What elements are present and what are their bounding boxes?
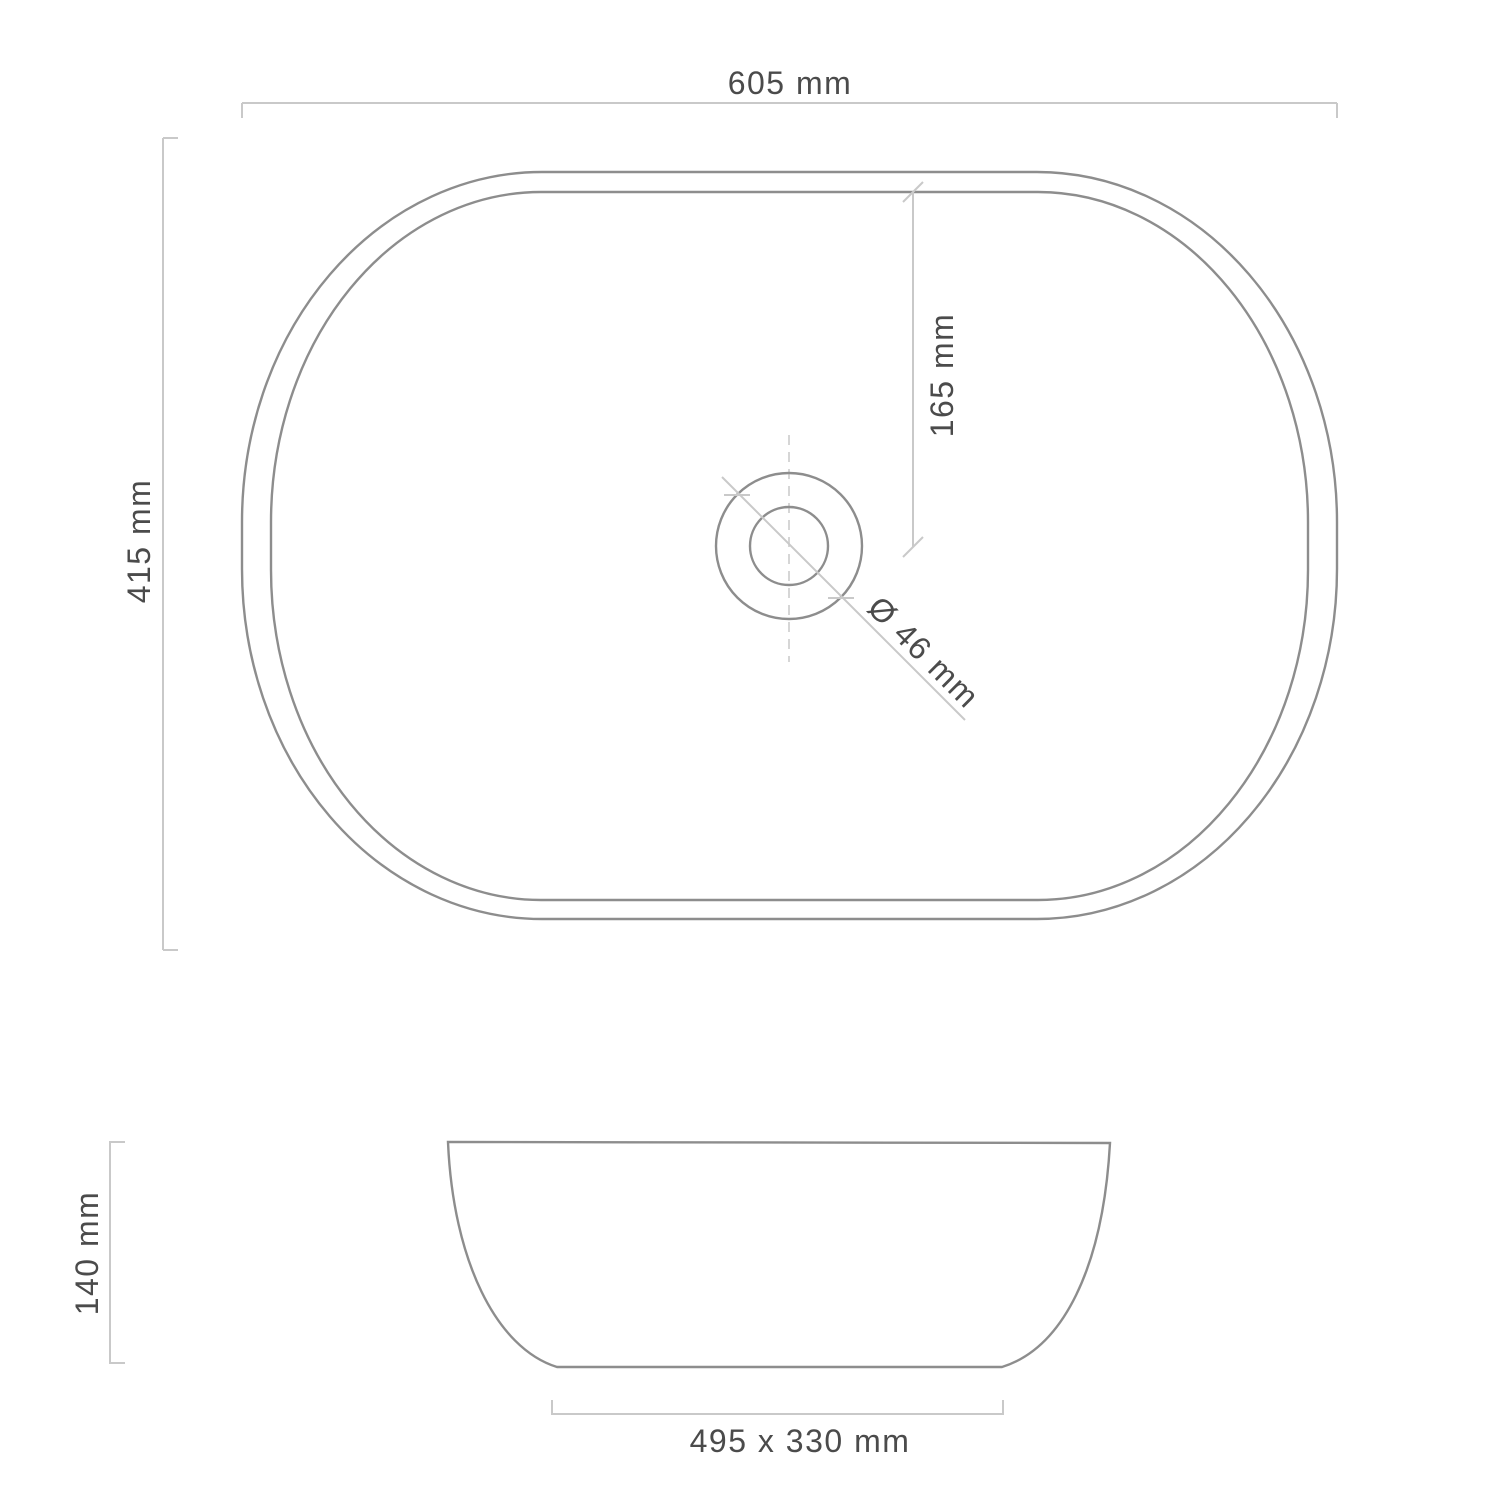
drain-offset-dimension-line	[903, 182, 923, 557]
side-height-dimension-line	[110, 1142, 125, 1363]
side-height-dimension-label: 140 mm	[69, 1191, 105, 1316]
sink-technical-drawing: 605 mm 415 mm 165 mm Ø 46 mm 140 mm 495 …	[0, 0, 1500, 1500]
base-dimension-line	[552, 1400, 1003, 1414]
width-dimension-line	[242, 103, 1337, 118]
technical-drawing-page: 605 mm 415 mm 165 mm Ø 46 mm 140 mm 495 …	[0, 0, 1500, 1500]
height-dimension-line	[163, 138, 178, 950]
drain-offset-dimension-label: 165 mm	[924, 313, 960, 438]
drain-diameter-leader-line	[722, 477, 965, 720]
width-dimension-label: 605 mm	[728, 65, 853, 101]
height-dimension-label: 415 mm	[121, 479, 157, 604]
side-view-bowl-outline	[448, 1142, 1110, 1367]
base-dimension-label: 495 x 330 mm	[690, 1423, 911, 1459]
drain-diameter-label: Ø 46 mm	[861, 589, 987, 715]
